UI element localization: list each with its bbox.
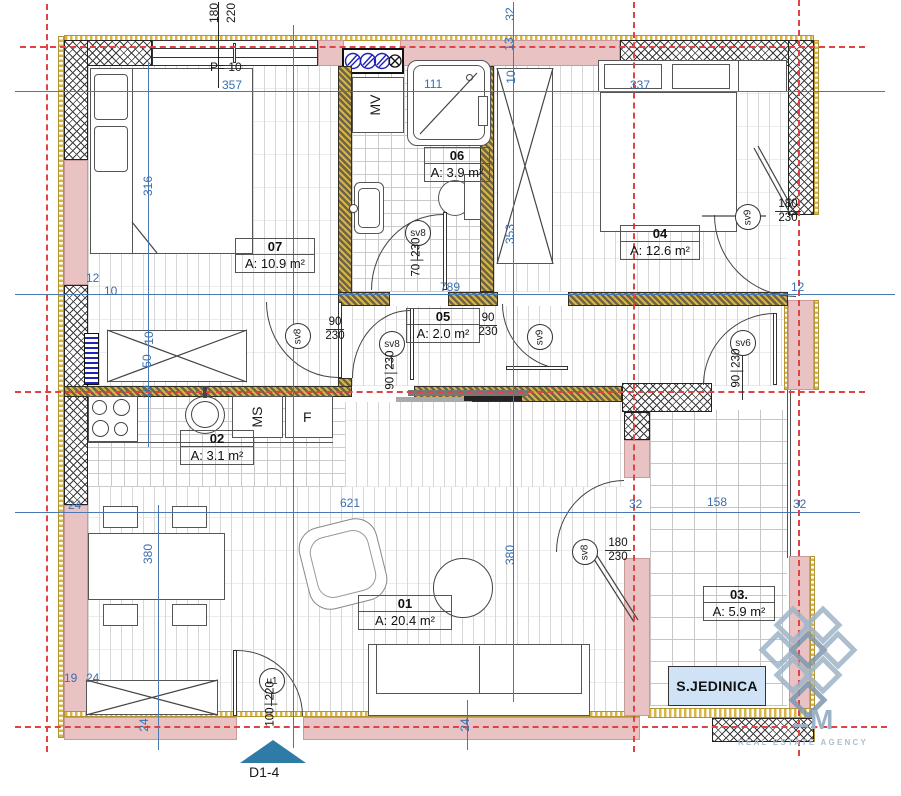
dim-line-v-158	[158, 505, 159, 750]
room-area: A: 5.9 m²	[704, 603, 774, 620]
room-number: 03.	[704, 587, 774, 603]
wall-terrace-left-c	[624, 558, 650, 716]
dim-353: 353	[503, 214, 517, 254]
agency-logo-letter: M	[810, 704, 833, 736]
room-area: A: 3.9 m²	[425, 164, 489, 181]
door-leaf-sv6	[773, 313, 777, 385]
sink-tap	[349, 204, 358, 213]
wall-corridor-corner	[622, 383, 712, 412]
dim-line-h-low	[15, 512, 860, 513]
dim-24-a: 24	[68, 498, 81, 512]
chair	[103, 506, 138, 528]
room-area: A: 3.1 m²	[181, 447, 253, 464]
fridge-label: F	[303, 409, 312, 425]
chair	[103, 604, 138, 626]
dim-24-c: 24	[137, 710, 151, 740]
tag-line	[271, 694, 272, 706]
bed-room04	[600, 92, 737, 232]
door-tag-sv9-room04: sv9	[527, 324, 553, 350]
dim-24-b: 24	[86, 671, 99, 685]
nightstand-divider	[738, 60, 739, 92]
room-number: 01	[359, 596, 451, 612]
wall-top-mid1	[318, 40, 344, 66]
shower-drain	[466, 74, 473, 81]
section-line-h1	[20, 46, 865, 48]
chair	[172, 506, 207, 528]
kitchen-sink-basin	[191, 401, 219, 428]
dim-10-left: 10	[104, 284, 117, 298]
door-width: 90	[384, 373, 397, 393]
dim-158: 158	[707, 495, 727, 509]
room-label-07: 07 A: 10.9 m²	[235, 238, 315, 273]
floor-living-upper	[345, 402, 624, 487]
door-dims-room04: 90 230	[468, 312, 508, 339]
section-line-v1	[46, 4, 48, 752]
door-height: 230	[478, 326, 497, 339]
door-tag-label: sv9	[743, 209, 754, 225]
insulation-right-top	[814, 40, 819, 215]
terrace-edge-right	[787, 390, 791, 558]
door-dims-terrace: 180 230	[598, 537, 638, 564]
note-partition: P= 10	[210, 60, 242, 74]
dim-line-v-513	[513, 2, 514, 702]
door-dims-room07: 90 230	[315, 316, 355, 343]
unit-label: S.JEDINICA	[676, 678, 758, 694]
room-label-06: 06 A: 3.9 m²	[424, 147, 490, 182]
burner	[114, 422, 128, 436]
dining-table	[88, 533, 225, 600]
dim-357: 357	[222, 78, 242, 92]
dim-380-living: 380	[503, 535, 517, 575]
burner	[113, 399, 130, 416]
pillow	[94, 74, 128, 120]
door-tag-sv8-room07: sv8	[285, 323, 311, 349]
room-number: 04	[621, 226, 699, 242]
wall-terrace-left-a	[624, 412, 650, 440]
dim-13-top: 13	[502, 29, 516, 59]
door-tag-label: sv8	[293, 328, 304, 344]
dim-32-top: 32	[503, 0, 517, 29]
room-label-03: 03. A: 5.9 m²	[703, 586, 775, 621]
section-marker-label: D1-4	[249, 764, 279, 780]
tv-shelf	[396, 397, 472, 402]
chair	[172, 604, 207, 626]
wardrobe-entry	[86, 680, 218, 715]
dishwasher-label: MS	[249, 402, 265, 432]
room-label-02: 02 A: 3.1 m²	[180, 430, 254, 465]
room-number: 06	[425, 148, 489, 164]
dim-111: 111	[424, 77, 442, 91]
wall-right-top	[788, 40, 814, 215]
floor-plan: M REAL ESTATE AGENCY 07 A: 10.9 m² 06 A:…	[0, 0, 901, 796]
room-label-04: 04 A: 12.6 m²	[620, 225, 700, 260]
burner	[92, 420, 109, 437]
door-height: 230	[778, 212, 797, 225]
room-number: 07	[236, 239, 314, 255]
room-area: A: 10.9 m²	[236, 255, 314, 272]
tag-line	[417, 246, 418, 260]
wall-left-a	[64, 40, 88, 160]
tag-line	[742, 356, 743, 400]
wall-left-d	[64, 505, 88, 730]
sofa-divider	[479, 646, 480, 694]
door-width: 90	[326, 316, 345, 330]
door-dims-balcony: 180 230	[768, 198, 808, 225]
room-number: 02	[181, 431, 253, 447]
door-width: 70	[410, 260, 423, 280]
pillow	[94, 126, 128, 172]
dim-24-d: 24	[458, 710, 472, 740]
dim-32-c: 32	[793, 497, 806, 511]
dim-10-c2: 10	[140, 377, 154, 407]
door-width: 90	[479, 312, 498, 326]
dim-380-dining: 380	[141, 534, 155, 574]
door-height: 230	[608, 551, 627, 564]
section-line-v2	[633, 2, 635, 752]
wall-terrace-left-b	[624, 440, 650, 478]
radiator	[84, 333, 99, 385]
dim-12-right: 12	[791, 280, 804, 294]
door-tag-sv9-balcony: sv9	[735, 204, 761, 230]
door-tag-sv8-terrace: sv8	[572, 539, 598, 565]
room-area: A: 12.6 m²	[621, 242, 699, 259]
wall-left-b	[64, 160, 88, 285]
dim-10-top: 10	[504, 62, 518, 92]
dim-12-left: 12	[86, 271, 99, 285]
unit-label-box: S.JEDINICA	[668, 666, 766, 706]
dim-line-v-293	[293, 25, 294, 748]
door-leaf-bathroom	[443, 212, 447, 290]
mattress-line	[132, 68, 133, 254]
dim-window-h: 220	[224, 0, 238, 28]
dim-50: 50	[140, 346, 154, 376]
insulation-right-mid-r	[814, 300, 819, 390]
pillow	[672, 64, 730, 89]
dim-19: 19	[64, 671, 77, 685]
door-leaf-room04	[506, 366, 568, 370]
section-marker-icon	[240, 740, 306, 763]
wall-right-mid	[788, 300, 814, 390]
door-tag-label: sv9	[535, 329, 546, 345]
door-width: 180	[605, 537, 630, 551]
dim-789: 789	[440, 280, 460, 294]
door-leaf-entry	[233, 650, 237, 716]
wall-07-06	[338, 66, 352, 302]
door-width: 180	[775, 198, 800, 212]
dim-32-b: 32	[629, 497, 642, 511]
burner	[92, 400, 107, 415]
agency-tagline: REAL ESTATE AGENCY	[738, 738, 868, 747]
dim-337: 337	[630, 78, 650, 92]
wardrobe-hall	[107, 330, 247, 382]
dim-621: 621	[340, 496, 360, 510]
door-height: 230	[325, 330, 344, 343]
dim-line-h-mid	[15, 294, 895, 295]
tag-line	[391, 357, 392, 369]
door-tag-label: sv8	[580, 544, 591, 560]
dim-316: 316	[141, 166, 155, 206]
door-width: 100	[264, 703, 277, 729]
shower-fixture	[478, 96, 488, 126]
washer-label: MV	[367, 90, 383, 120]
dim-line-h-top	[15, 91, 885, 92]
shaft-symbols-icon	[344, 50, 402, 72]
room-label-01: 01 A: 20.4 m²	[358, 595, 452, 630]
dim-window-w: 180	[207, 0, 221, 28]
agency-logo-dash	[794, 724, 808, 727]
room-area: A: 20.4 m²	[359, 612, 451, 629]
sink-basin	[358, 188, 380, 228]
